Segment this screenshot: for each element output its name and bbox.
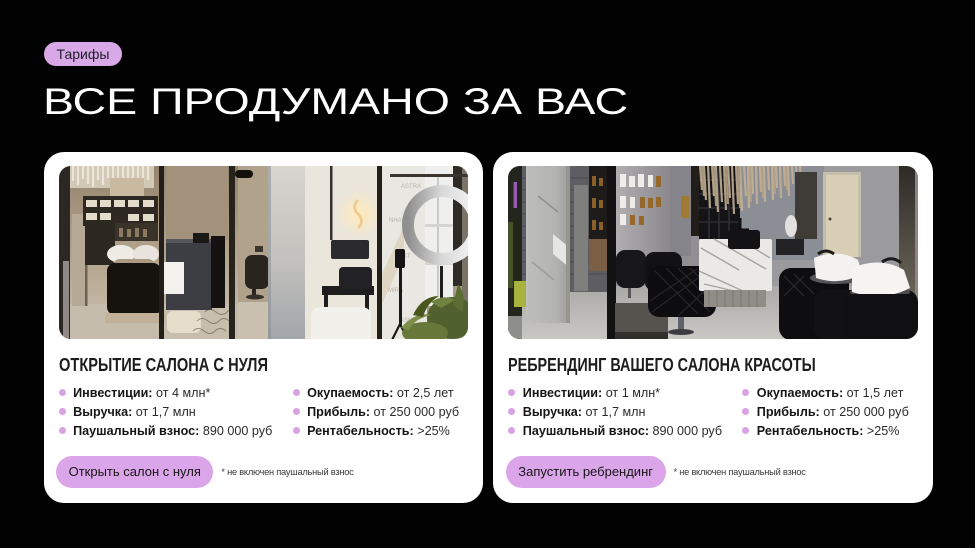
- svg-text:ASTRA: ASTRA: [401, 184, 421, 190]
